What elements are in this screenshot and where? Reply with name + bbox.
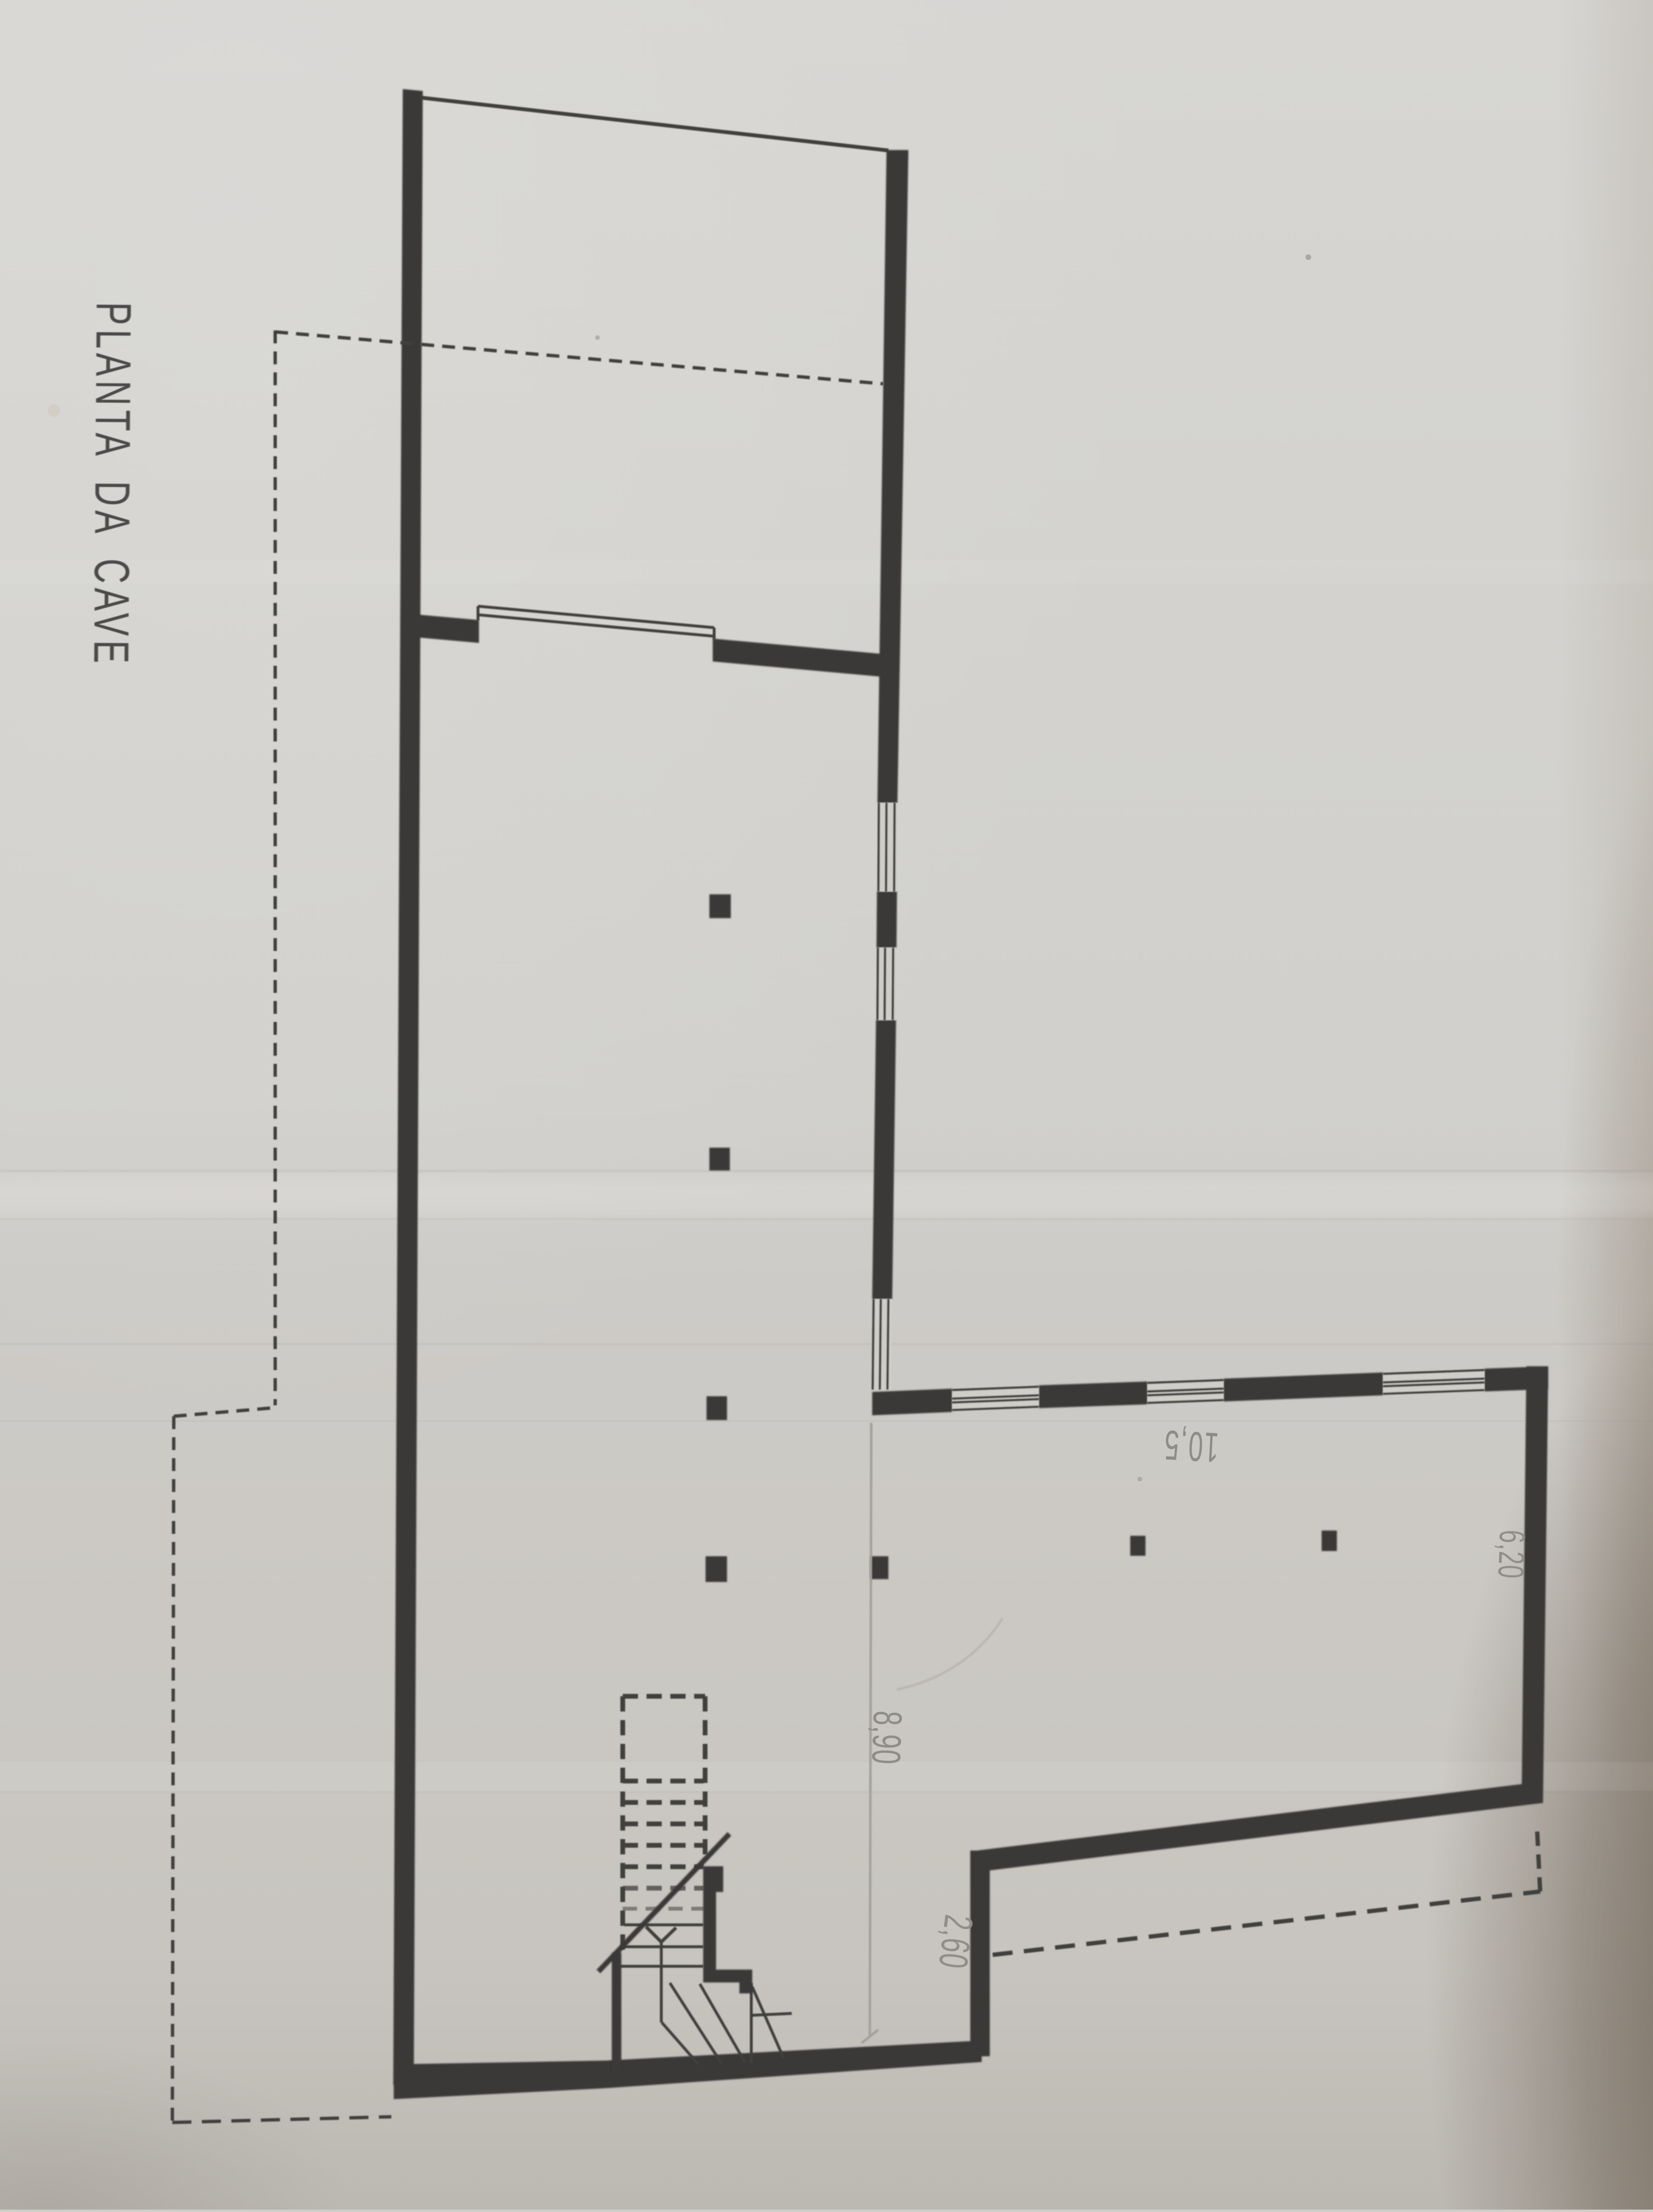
svg-text:PLANTA DA CAVE: PLANTA DA CAVE: [83, 302, 141, 668]
svg-text:2,60: 2,60: [930, 1912, 980, 1972]
svg-text:10,5: 10,5: [1162, 1421, 1220, 1471]
svg-text:8,90: 8,90: [863, 1710, 909, 1765]
svg-text:6,20: 6,20: [1491, 1529, 1533, 1580]
